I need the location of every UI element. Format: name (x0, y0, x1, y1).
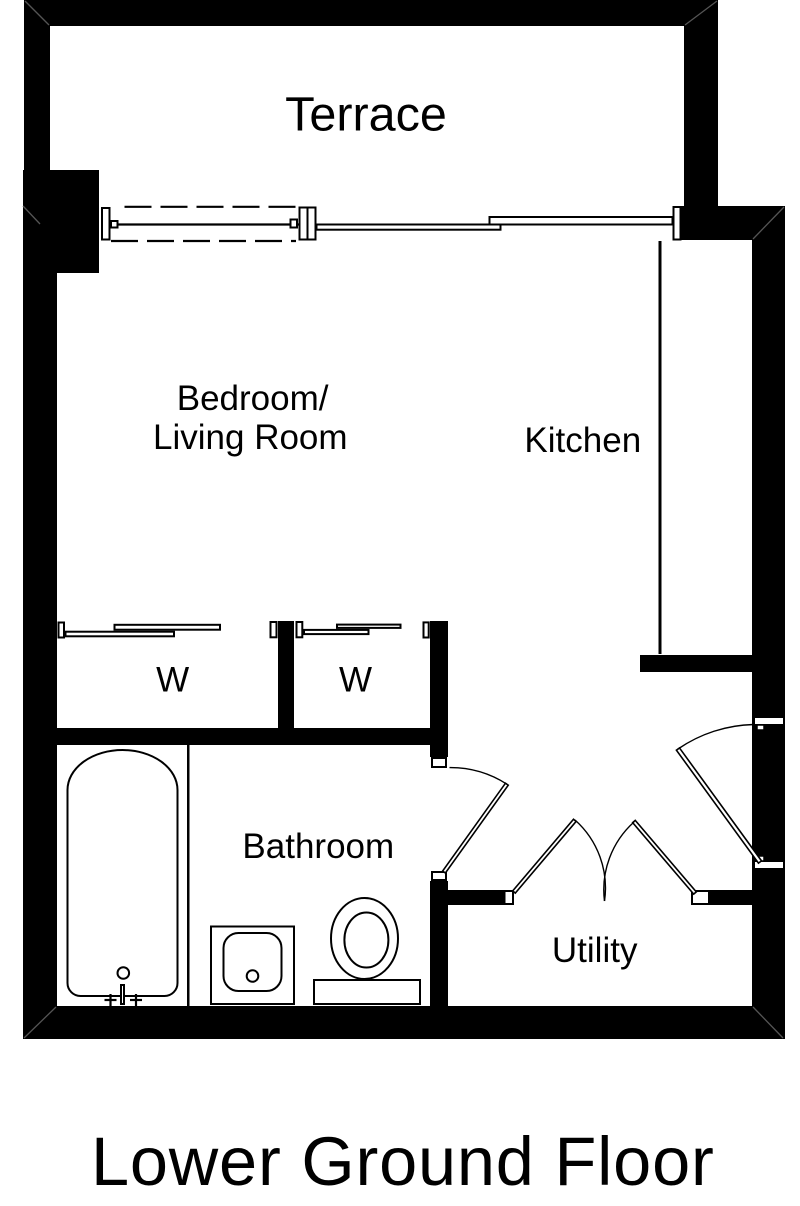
svg-text:Bathroom: Bathroom (242, 827, 394, 866)
svg-text:Terrace: Terrace (285, 88, 447, 142)
svg-text:Lower Ground Floor: Lower Ground Floor (91, 1123, 715, 1200)
svg-text:W: W (156, 661, 189, 700)
svg-text:Bedroom/: Bedroom/ (177, 379, 329, 418)
svg-text:Living Room: Living Room (153, 418, 348, 457)
svg-text:Kitchen: Kitchen (524, 421, 641, 460)
svg-text:Utility: Utility (552, 931, 638, 970)
svg-text:W: W (339, 661, 372, 700)
